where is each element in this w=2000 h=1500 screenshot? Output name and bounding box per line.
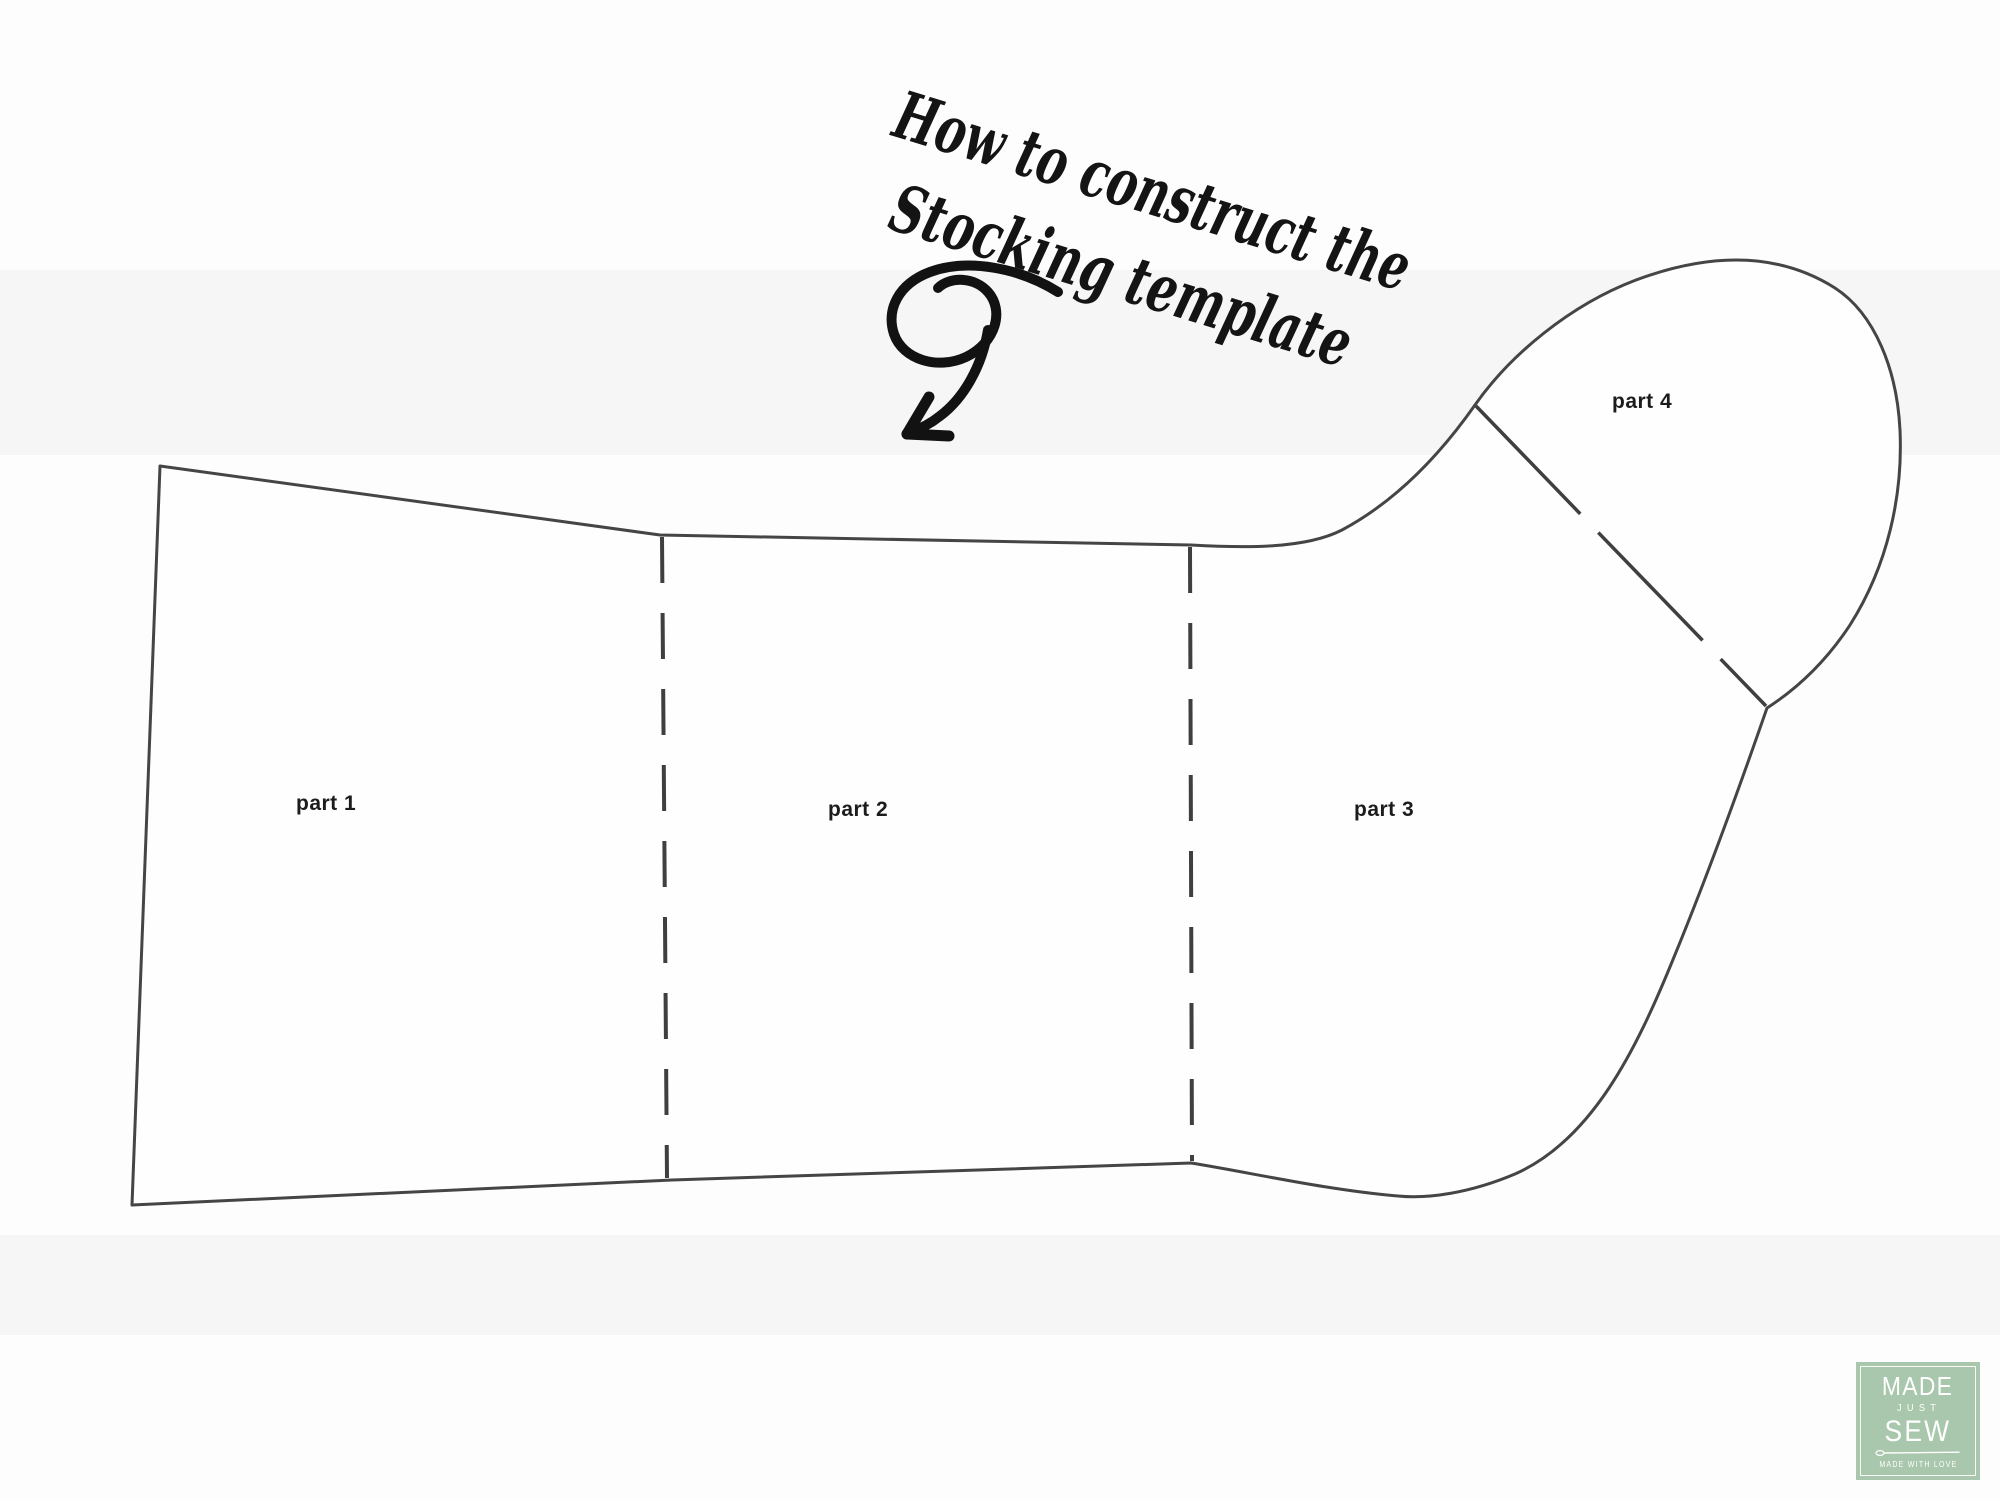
- logo-border: MADE JUST SEW MADE WITH LOVE: [1860, 1366, 1976, 1476]
- part-2-label: part 2: [828, 798, 888, 821]
- stocking-pattern: part 1 part 2 part 3 part 4: [132, 260, 1900, 1205]
- scanned-pattern-page: part 1 part 2 part 3 part 4 How to const…: [0, 0, 2000, 1500]
- logo-word-sew: SEW: [1885, 1417, 1952, 1447]
- page-title: How to construct the Stocking template: [881, 75, 1419, 383]
- swirl-arrow-icon: [892, 266, 1058, 436]
- part-1-label: part 1: [296, 792, 356, 815]
- part-3-label: part 3: [1354, 798, 1414, 821]
- made-just-sew-logo: MADE JUST SEW MADE WITH LOVE: [1856, 1362, 1980, 1480]
- needle-icon: [1875, 1449, 1961, 1457]
- logo-tagline: MADE WITH LOVE: [1879, 1461, 1957, 1469]
- part-4-label: part 4: [1612, 390, 1672, 413]
- stocking-template-diagram: part 1 part 2 part 3 part 4 How to const…: [0, 0, 2000, 1500]
- logo-word-made: MADE: [1882, 1373, 1953, 1399]
- logo-word-just: JUST: [1897, 1403, 1941, 1414]
